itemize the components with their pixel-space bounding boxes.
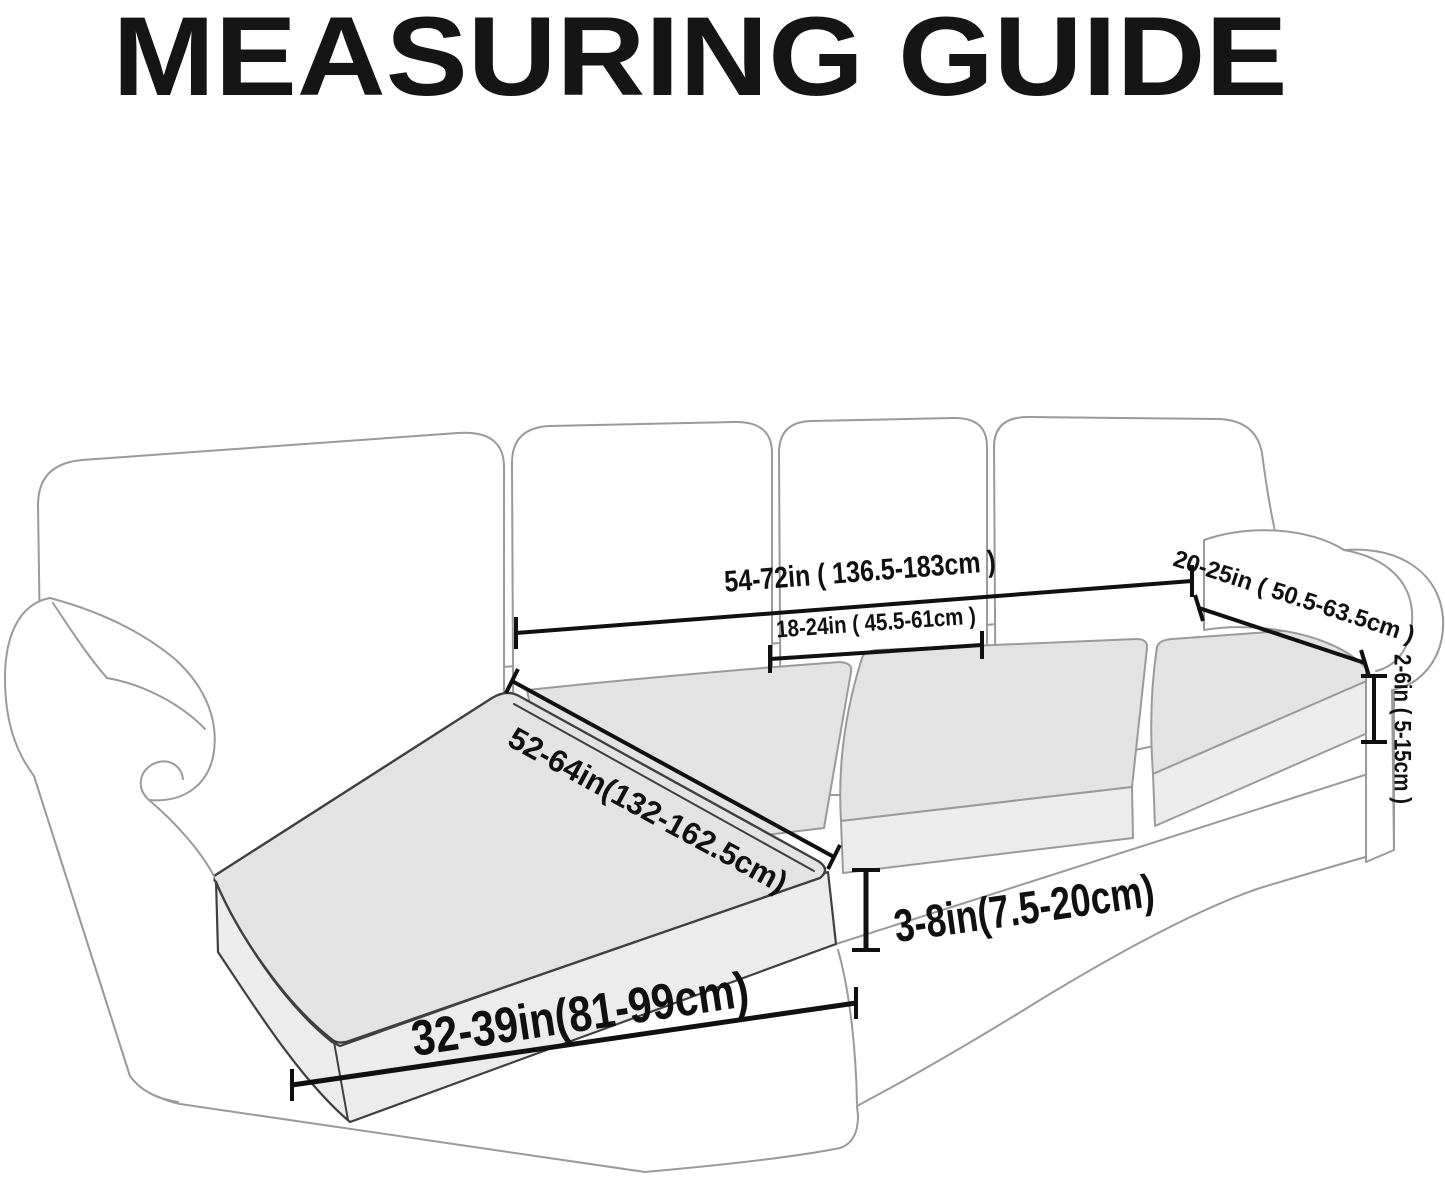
sofa-measuring-diagram: MEASURING GUIDE 54-72in ( 136.5-183cm ) — [0, 0, 1445, 1183]
measurement-seat-to-armrest-height-label: 2-6in ( 5-15cm ) — [1389, 654, 1416, 804]
page-title: MEASURING GUIDE — [113, 0, 1288, 119]
left-armrest — [5, 598, 215, 1102]
measuring-guide-page: MEASURING GUIDE 54-72in ( 136.5-183cm ) — [0, 0, 1445, 1183]
